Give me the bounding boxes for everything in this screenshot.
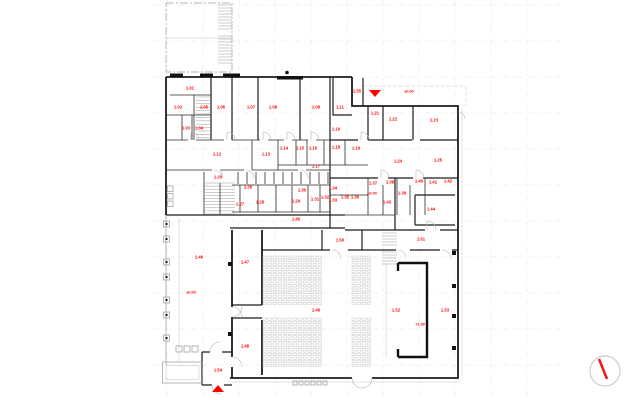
seat-icon — [367, 350, 370, 352]
seat-icon — [362, 354, 365, 356]
seat-icon — [273, 346, 276, 348]
seat-icon — [367, 274, 370, 276]
seat-icon — [283, 302, 286, 304]
seat-icon — [263, 343, 266, 345]
seat-icon — [298, 284, 301, 286]
canopy-bar — [200, 74, 213, 78]
seat-icon — [283, 318, 286, 320]
seat-icon — [367, 260, 370, 262]
seat-icon — [293, 361, 296, 363]
seat-icon — [352, 274, 355, 276]
seat-icon — [288, 295, 291, 297]
canopy-post-icon — [285, 71, 289, 75]
seat-icon — [278, 274, 281, 276]
seat-icon — [278, 361, 281, 363]
seat-icon — [288, 274, 291, 276]
room-label-1-03: 1.03 — [182, 125, 191, 130]
seat-icon — [283, 288, 286, 290]
room-label-1-19: 1.19 — [352, 145, 361, 150]
seat-icon — [357, 339, 360, 341]
seat-icon — [283, 284, 286, 286]
seat-icon — [357, 256, 360, 258]
room-label-1-38: 1.38 — [386, 179, 395, 184]
seat-icon — [352, 332, 355, 334]
bollard-icon — [305, 381, 309, 385]
seat-icon — [268, 292, 271, 294]
seat-icon — [298, 270, 301, 272]
seat-icon — [298, 350, 301, 352]
column-icons — [164, 221, 170, 341]
seat-icon — [288, 346, 291, 348]
seat-icon — [268, 299, 271, 301]
seat-icon — [288, 329, 291, 331]
seat-icon — [367, 299, 370, 301]
seat-icon — [278, 350, 281, 352]
seat-icon — [318, 288, 321, 290]
seat-icon — [313, 263, 316, 265]
seat-icon — [293, 299, 296, 301]
seat-icon — [352, 336, 355, 338]
seat-icon — [352, 288, 355, 290]
room-label-1-51: 1.51 — [417, 236, 426, 241]
seat-icon — [362, 339, 365, 341]
seat-icon — [308, 270, 311, 272]
seat-icon — [283, 361, 286, 363]
seat-icon — [367, 336, 370, 338]
seat-icon — [273, 299, 276, 301]
seat-icon — [283, 339, 286, 341]
seat-icon — [293, 281, 296, 283]
room-label-1-09: 1.09 — [312, 104, 321, 109]
seat-icon — [367, 325, 370, 327]
seat-icon — [298, 295, 301, 297]
seat-icon — [268, 274, 271, 276]
seat-icon — [298, 299, 301, 301]
seat-icon — [313, 357, 316, 359]
outer-walls — [166, 77, 458, 385]
seat-icon — [278, 270, 281, 272]
seat-icon — [318, 281, 321, 283]
seat-icon — [283, 354, 286, 356]
annex-outline — [166, 3, 232, 72]
elevation-label: ±0.00 — [404, 89, 413, 93]
room-label-1-26: 1.26 — [244, 184, 253, 189]
seat-icon — [352, 302, 355, 304]
seat-icon — [298, 332, 301, 334]
seat-icon — [318, 318, 321, 320]
seat-icon — [367, 339, 370, 341]
seat-icon — [357, 288, 360, 290]
seat-icon — [362, 318, 365, 320]
seat-icon — [303, 281, 306, 283]
seat-icon — [263, 336, 266, 338]
seat-icon — [293, 318, 296, 320]
seat-icon — [273, 274, 276, 276]
room-label-1-13: 1.13 — [262, 151, 271, 156]
seat-icon — [278, 295, 281, 297]
seat-icon — [278, 263, 281, 265]
seat-icon — [273, 354, 276, 356]
seat-icon — [283, 277, 286, 279]
seat-icon — [303, 332, 306, 334]
room-label-1-30: 1.30 — [298, 187, 307, 192]
seat-icon — [298, 354, 301, 356]
room-label-1-14: 1.14 — [280, 145, 289, 150]
seat-icon — [273, 277, 276, 279]
seat-icon — [283, 357, 286, 359]
seat-icon — [283, 325, 286, 327]
seat-icon — [367, 267, 370, 269]
seat-icon — [313, 288, 316, 290]
seat-icon — [273, 350, 276, 352]
seat-icon — [318, 343, 321, 345]
seat-icon — [273, 332, 276, 334]
seat-icon — [298, 346, 301, 348]
seat-icon — [263, 322, 266, 324]
room-label-1-54: 1.54 — [214, 367, 223, 372]
kitchen-fixture-icon — [168, 194, 174, 200]
seat-icon — [283, 350, 286, 352]
seat-icon — [273, 288, 276, 290]
seat-icon — [367, 281, 370, 283]
seat-icon — [273, 343, 276, 345]
seat-icon — [283, 263, 286, 265]
seat-icon — [263, 332, 266, 334]
seat-icon — [313, 336, 316, 338]
seat-icon — [273, 336, 276, 338]
seat-icon — [318, 325, 321, 327]
seat-icon — [268, 339, 271, 341]
seat-icon — [318, 260, 321, 262]
seat-icon — [263, 302, 266, 304]
seat-icon — [303, 274, 306, 276]
seat-icon — [357, 329, 360, 331]
seat-icon — [288, 267, 291, 269]
seat-icon — [293, 350, 296, 352]
seat-icon — [298, 277, 301, 279]
seat-icon — [268, 318, 271, 320]
seat-icon — [293, 339, 296, 341]
seat-icon — [298, 361, 301, 363]
seat-icon — [298, 302, 301, 304]
seat-icon — [283, 346, 286, 348]
column-core — [166, 223, 168, 225]
seat-icon — [263, 318, 266, 320]
seat-icon — [313, 292, 316, 294]
seat-icon — [278, 318, 281, 320]
seat-icon — [303, 361, 306, 363]
seat-icon — [352, 318, 355, 320]
seat-icon — [298, 263, 301, 265]
room-label-1-33: 1.33 — [329, 197, 338, 202]
seat-icon — [313, 299, 316, 301]
seat-icon — [303, 292, 306, 294]
room-label-1-04: 1.04 — [195, 125, 204, 130]
seat-icon — [283, 343, 286, 345]
planter-icon — [192, 346, 198, 352]
room-label-1-21: 1.21 — [371, 110, 380, 115]
seat-icon — [293, 288, 296, 290]
kitchen-fixture-icon — [168, 201, 174, 207]
room-label-1-08: 1.08 — [269, 104, 278, 109]
seat-icon — [318, 256, 321, 258]
seat-icon — [313, 302, 316, 304]
seat-icon — [357, 295, 360, 297]
seat-icon — [352, 350, 355, 352]
seat-icon — [298, 339, 301, 341]
roof-edges — [232, 86, 466, 382]
seat-icon — [313, 260, 316, 262]
seat-icon — [313, 322, 316, 324]
seat-icon — [268, 260, 271, 262]
seat-icon — [263, 274, 266, 276]
seat-icon — [268, 346, 271, 348]
south-entrance-doors — [352, 378, 372, 388]
seat-icon — [288, 260, 291, 262]
seat-icon — [268, 284, 271, 286]
seat-icon — [367, 277, 370, 279]
room-label-1-43: 1.43 — [383, 199, 392, 204]
seat-icon — [288, 325, 291, 327]
seat-icon — [362, 295, 365, 297]
room-label-1-48: 1.48 — [241, 343, 250, 348]
seat-icon — [263, 350, 266, 352]
seat-icon — [283, 274, 286, 276]
seat-icon — [263, 284, 266, 286]
seat-icon — [268, 350, 271, 352]
seat-icon — [318, 350, 321, 352]
seat-icon — [352, 346, 355, 348]
seat-icon — [362, 322, 365, 324]
seat-icon — [357, 281, 360, 283]
seat-icon — [357, 270, 360, 272]
room-label-1-06: 1.06 — [217, 104, 226, 109]
seat-icon — [303, 325, 306, 327]
seat-icon — [268, 336, 271, 338]
seat-icon — [362, 343, 365, 345]
seat-icon — [288, 343, 291, 345]
seat-icon — [303, 288, 306, 290]
room-label-1-02: 1.02 — [174, 104, 183, 109]
seat-icon — [283, 336, 286, 338]
seat-icon — [298, 322, 301, 324]
seat-icon — [367, 318, 370, 320]
seat-icon — [293, 295, 296, 297]
seat-icon — [278, 292, 281, 294]
seat-icon — [293, 274, 296, 276]
seat-icon — [293, 284, 296, 286]
seat-icon — [278, 284, 281, 286]
room-label-1-23: 1.23 — [430, 117, 439, 122]
seat-icon — [273, 339, 276, 341]
seat-icon — [357, 299, 360, 301]
bollard-icon — [299, 381, 303, 385]
pilaster-icon — [452, 314, 456, 318]
seat-icon — [293, 325, 296, 327]
room-label-1-55: 1.55 — [353, 88, 362, 93]
seat-icon — [367, 357, 370, 359]
seat-icon — [313, 361, 316, 363]
site-fixtures — [163, 186, 328, 385]
seat-icon — [288, 336, 291, 338]
bollard-icon — [323, 381, 327, 385]
seat-icon — [293, 354, 296, 356]
room-label-1-39: 1.39 — [398, 190, 407, 195]
seat-icon — [367, 354, 370, 356]
seat-icon — [352, 343, 355, 345]
room-label-1-25: 1.25 — [434, 157, 443, 162]
seat-icon — [273, 325, 276, 327]
seat-icon — [362, 277, 365, 279]
seat-icon — [288, 270, 291, 272]
room-label-1-44: 1.44 — [427, 206, 436, 211]
kitchen-fixture-icon — [168, 186, 174, 192]
seat-icon — [263, 260, 266, 262]
floor-plan-drawing: 1.011.021.031.041.051.061.071.081.091.10… — [0, 0, 640, 400]
seat-icon — [288, 292, 291, 294]
seat-icon — [313, 346, 316, 348]
room-label-1-01: 1.01 — [186, 85, 195, 90]
seat-icon — [303, 295, 306, 297]
seat-icon — [362, 332, 365, 334]
cubicle-row — [238, 172, 328, 184]
seat-icon — [303, 267, 306, 269]
seat-icon — [298, 288, 301, 290]
seat-icon — [263, 325, 266, 327]
seat-icon — [362, 284, 365, 286]
seat-icon — [283, 270, 286, 272]
seat-icon — [352, 270, 355, 272]
seat-icon — [293, 260, 296, 262]
seat-icon — [268, 361, 271, 363]
room-label-1-07: 1.07 — [247, 104, 256, 109]
seat-icon — [318, 354, 321, 356]
seat-icon — [303, 302, 306, 304]
seat-icon — [352, 284, 355, 286]
bollard-icon — [293, 381, 297, 385]
room-label-1-53: 1.53 — [441, 307, 450, 312]
pilaster-icon — [452, 284, 456, 288]
bollard-icon — [311, 381, 315, 385]
seat-icon — [273, 281, 276, 283]
seat-icon — [303, 260, 306, 262]
seat-icon — [288, 299, 291, 301]
seat-icon — [357, 274, 360, 276]
seat-icon — [352, 322, 355, 324]
seat-icon — [313, 354, 316, 356]
seat-icon — [367, 292, 370, 294]
column-core — [166, 299, 168, 301]
seat-icon — [298, 343, 301, 345]
seat-icon — [367, 346, 370, 348]
seat-icon — [263, 357, 266, 359]
seat-icon — [352, 277, 355, 279]
seat-icon — [362, 361, 365, 363]
seat-icon — [263, 281, 266, 283]
room-label-1-31: 1.31 — [311, 196, 320, 201]
seat-icon — [283, 322, 286, 324]
room-label-1-28: 1.28 — [256, 199, 265, 204]
seat-icon — [278, 332, 281, 334]
seat-icon — [263, 346, 266, 348]
seat-icon — [278, 288, 281, 290]
seat-icon — [318, 336, 321, 338]
compass-needle-icon — [599, 359, 607, 379]
seat-icon — [288, 357, 291, 359]
seat-icon — [268, 263, 271, 265]
seat-icon — [263, 299, 266, 301]
seat-icon — [318, 292, 321, 294]
seat-icon — [357, 350, 360, 352]
seat-icon — [362, 299, 365, 301]
seat-icon — [278, 336, 281, 338]
seat-icon — [318, 364, 321, 366]
seat-icon — [313, 343, 316, 345]
seat-icon — [318, 274, 321, 276]
seat-icon — [362, 302, 365, 304]
seat-icon — [313, 267, 316, 269]
seat-icon — [357, 332, 360, 334]
seat-icon — [263, 277, 266, 279]
room-label-1-11: 1.11 — [336, 104, 345, 109]
seat-icon — [367, 263, 370, 265]
seat-icon — [288, 256, 291, 258]
seat-icon — [303, 299, 306, 301]
seat-icon — [313, 332, 316, 334]
seat-icon — [278, 346, 281, 348]
seat-icon — [362, 281, 365, 283]
seat-icon — [298, 260, 301, 262]
room-label-1-16: 1.16 — [309, 145, 318, 150]
room-number-labels: 1.011.021.031.041.051.061.071.081.091.10… — [174, 85, 453, 372]
seat-icon — [357, 322, 360, 324]
elevation-label: ±0.00 — [367, 191, 376, 195]
seat-icon — [288, 277, 291, 279]
seat-icon — [318, 361, 321, 363]
seat-icon — [367, 288, 370, 290]
seat-icon — [303, 263, 306, 265]
seat-icon — [273, 260, 276, 262]
seat-icon — [303, 346, 306, 348]
seat-icon — [308, 318, 311, 320]
seat-icon — [288, 339, 291, 341]
seat-icon — [318, 295, 321, 297]
seat-icon — [362, 325, 365, 327]
seat-icon — [278, 260, 281, 262]
room-label-1-24: 1.24 — [394, 158, 403, 163]
room-label-1-42: 1.42 — [444, 178, 453, 183]
seat-icon — [318, 270, 321, 272]
seat-icon — [268, 302, 271, 304]
seat-icon — [263, 361, 266, 363]
seat-icon — [278, 277, 281, 279]
seat-icon — [283, 299, 286, 301]
room-label-1-49: 1.49 — [312, 307, 321, 312]
seat-icon — [303, 354, 306, 356]
seat-icon — [352, 281, 355, 283]
room-label-1-12: 1.12 — [213, 151, 222, 156]
seat-icon — [357, 343, 360, 345]
seat-icon — [263, 354, 266, 356]
seat-icon — [357, 267, 360, 269]
room-label-1-18: 1.18 — [332, 144, 341, 149]
seat-icon — [357, 318, 360, 320]
seat-icon — [318, 332, 321, 334]
seat-icon — [288, 288, 291, 290]
seat-icon — [278, 354, 281, 356]
seat-icon — [278, 325, 281, 327]
seat-icon — [268, 354, 271, 356]
